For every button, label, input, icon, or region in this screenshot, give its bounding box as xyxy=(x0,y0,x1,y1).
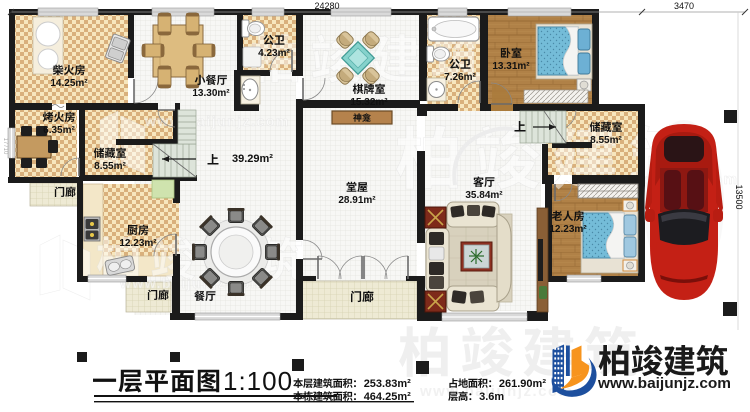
svg-text:261.90m²: 261.90m² xyxy=(499,378,546,390)
svg-text:3.6m: 3.6m xyxy=(479,391,504,403)
svg-text:6.35m²: 6.35m² xyxy=(43,125,75,136)
svg-text:24280: 24280 xyxy=(314,1,339,11)
svg-text:12.23m²: 12.23m² xyxy=(119,238,157,249)
svg-text:13.31m²: 13.31m² xyxy=(492,61,530,72)
svg-text:8.55m²: 8.55m² xyxy=(590,135,622,146)
svg-text:12.23m²: 12.23m² xyxy=(549,224,587,235)
svg-text:17710: 17710 xyxy=(2,138,8,155)
svg-text:13500: 13500 xyxy=(734,184,744,209)
svg-text:4.23m²: 4.23m² xyxy=(258,48,290,59)
svg-text:1:100: 1:100 xyxy=(223,366,293,396)
svg-text:464.25m²: 464.25m² xyxy=(364,391,411,403)
svg-text:35.84m²: 35.84m² xyxy=(465,190,503,201)
svg-text:14.25m²: 14.25m² xyxy=(50,78,88,89)
svg-text:39.29m²: 39.29m² xyxy=(232,153,273,165)
svg-text:www.baijunjz.com: www.baijunjz.com xyxy=(597,376,731,392)
svg-text:28.91m²: 28.91m² xyxy=(338,195,376,206)
svg-text:15.32m²: 15.32m² xyxy=(350,97,388,108)
svg-text:7.26m²: 7.26m² xyxy=(444,72,476,83)
svg-text:www.baijunjz.com: www.baijunjz.com xyxy=(144,113,290,129)
svg-text:8.55m²: 8.55m² xyxy=(94,161,126,172)
svg-text:13.30m²: 13.30m² xyxy=(192,88,230,99)
svg-text:3470: 3470 xyxy=(674,1,694,11)
svg-text:253.83m²: 253.83m² xyxy=(364,378,411,390)
